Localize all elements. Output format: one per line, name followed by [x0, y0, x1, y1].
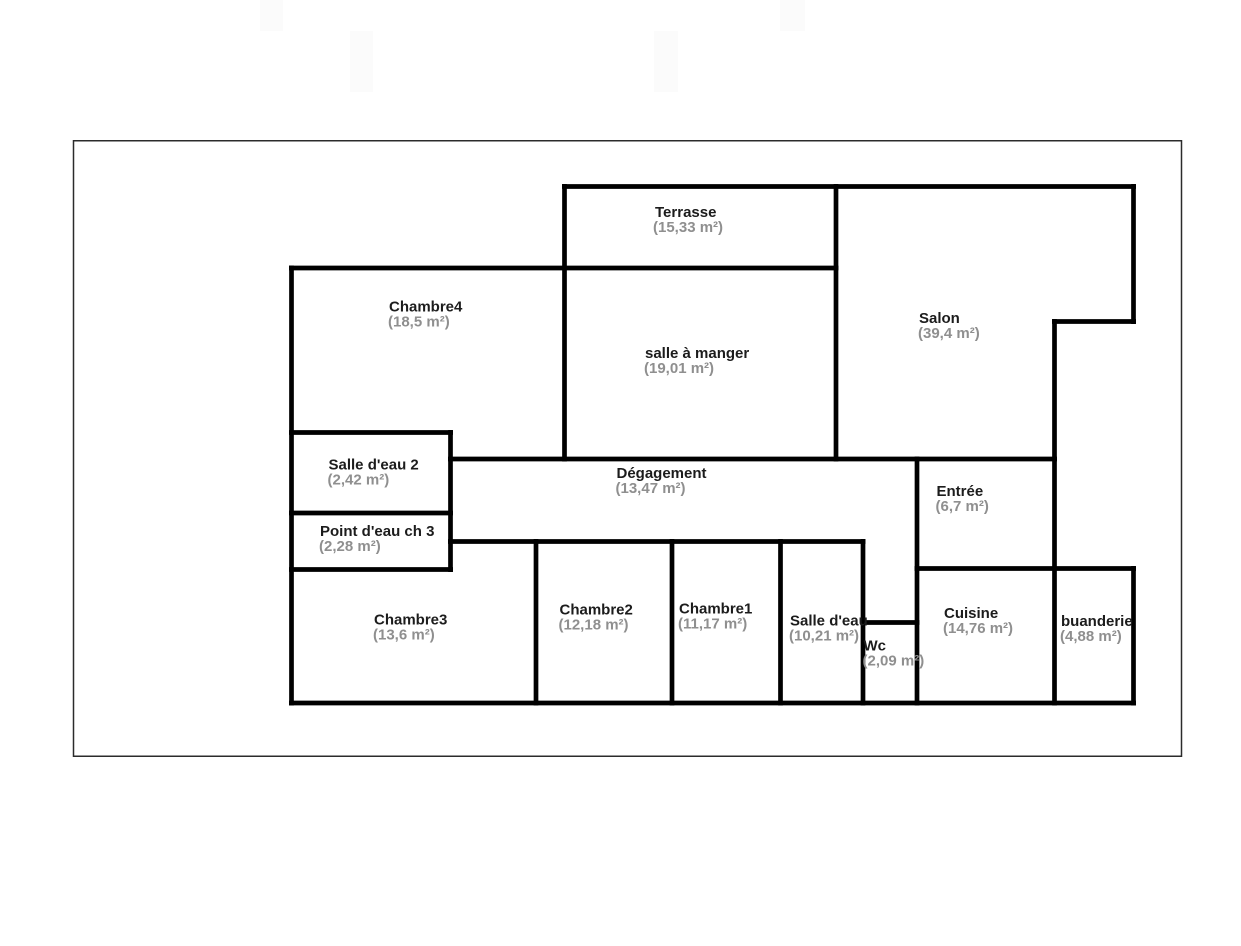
svg-text:(11,17 m²): (11,17 m²) — [678, 616, 747, 633]
svg-text:(2,42 m²): (2,42 m²) — [328, 472, 390, 489]
svg-text:(39,4 m²): (39,4 m²) — [918, 325, 980, 342]
svg-text:(2,09 m²): (2,09 m²) — [863, 653, 925, 670]
svg-text:(13,47 m²): (13,47 m²) — [616, 480, 686, 497]
svg-text:(12,18 m²): (12,18 m²) — [559, 617, 629, 634]
svg-text:(19,01 m²): (19,01 m²) — [644, 360, 714, 377]
svg-text:(15,33 m²): (15,33 m²) — [653, 219, 723, 236]
svg-text:(2,28 m²): (2,28 m²) — [319, 538, 381, 555]
svg-text:(6,7 m²): (6,7 m²) — [936, 498, 989, 515]
svg-text:(4,88 m²): (4,88 m²) — [1060, 628, 1122, 645]
svg-text:(18,5 m²): (18,5 m²) — [388, 314, 450, 331]
svg-text:(13,6 m²): (13,6 m²) — [373, 627, 435, 644]
svg-text:(14,76 m²): (14,76 m²) — [943, 620, 1013, 637]
svg-text:(10,21 m²): (10,21 m²) — [789, 628, 859, 645]
